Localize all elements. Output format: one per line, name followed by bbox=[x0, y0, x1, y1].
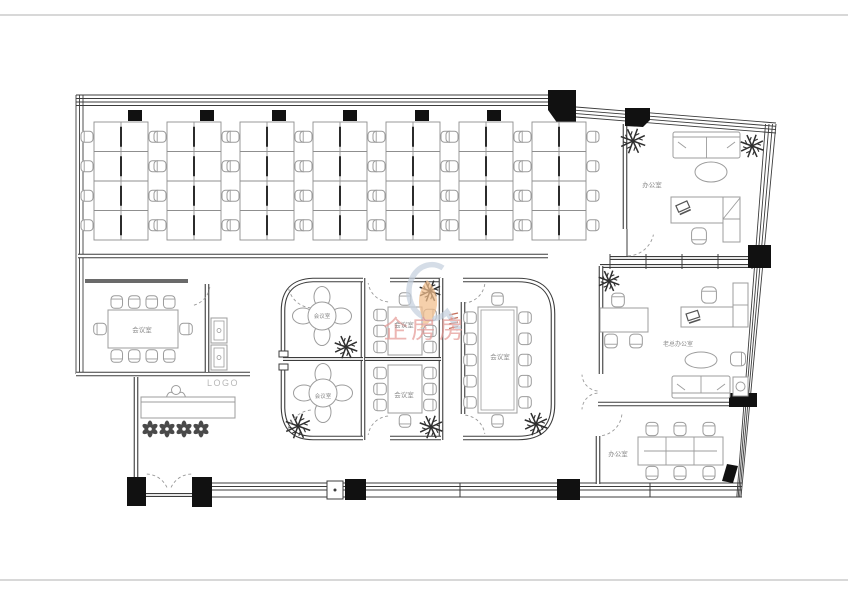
column bbox=[557, 479, 580, 500]
chair bbox=[300, 220, 312, 231]
door-arc bbox=[289, 288, 311, 308]
chair-seat bbox=[587, 220, 599, 231]
chair-seat bbox=[464, 397, 477, 409]
chair bbox=[674, 466, 686, 479]
chair-seat bbox=[163, 296, 175, 309]
chair bbox=[464, 397, 477, 409]
chair bbox=[446, 220, 458, 231]
room-label-office-top-right: 办公室 bbox=[642, 180, 662, 189]
room-label-meeting-left: 会议室 bbox=[132, 325, 152, 334]
cabinet-body bbox=[211, 345, 227, 370]
chair bbox=[630, 334, 643, 348]
leaf bbox=[534, 415, 536, 419]
column bbox=[722, 464, 738, 483]
stool-icon bbox=[175, 421, 192, 438]
stool-center bbox=[182, 427, 186, 431]
round-meeting-table bbox=[294, 364, 353, 423]
leaf bbox=[303, 424, 307, 426]
desk-return bbox=[723, 197, 740, 242]
chair bbox=[163, 350, 175, 363]
door-arc bbox=[465, 284, 484, 303]
chair-seat bbox=[519, 161, 531, 172]
sofa bbox=[672, 376, 730, 398]
stool-icon bbox=[192, 421, 209, 438]
chair-seat bbox=[703, 422, 715, 435]
chair bbox=[154, 190, 166, 201]
floor-plan-page: 企房房 会议室 会议室 会议室 会议室 会议室 会议室 办公室 老总办公室 办公… bbox=[0, 0, 848, 600]
leaf bbox=[753, 151, 755, 155]
stool-icon bbox=[158, 421, 175, 438]
chair bbox=[146, 296, 158, 309]
chair-seat bbox=[81, 131, 93, 142]
chair bbox=[154, 161, 166, 172]
desk-cluster bbox=[154, 122, 234, 240]
leaf bbox=[613, 279, 617, 280]
desk-cluster bbox=[81, 122, 161, 240]
chair bbox=[111, 350, 123, 363]
plant-stem bbox=[296, 424, 299, 427]
chair-seat bbox=[227, 220, 239, 231]
door-arc bbox=[170, 474, 191, 490]
chair-seat bbox=[154, 220, 166, 231]
chair bbox=[492, 293, 504, 306]
desk-cluster bbox=[227, 122, 307, 240]
leaf bbox=[351, 345, 355, 347]
door-arc bbox=[147, 474, 168, 490]
door-arc bbox=[368, 283, 388, 302]
chair bbox=[519, 161, 531, 172]
reception-desk bbox=[141, 397, 235, 418]
chair bbox=[128, 350, 140, 363]
chair-seat bbox=[674, 422, 686, 435]
chair-seat bbox=[128, 350, 140, 363]
chair bbox=[146, 350, 158, 363]
chair-seat bbox=[374, 383, 387, 395]
room-label-office-bottom-right: 办公室 bbox=[608, 449, 628, 458]
chair-seat bbox=[464, 375, 477, 387]
chair-seat bbox=[300, 190, 312, 201]
chair-seat bbox=[519, 354, 532, 366]
door-frame bbox=[279, 351, 288, 357]
chair-seat bbox=[373, 131, 385, 142]
coffee-table-oval bbox=[695, 162, 727, 182]
column bbox=[748, 245, 771, 268]
chair-seat bbox=[300, 131, 312, 142]
leaf bbox=[631, 131, 633, 135]
leaf bbox=[337, 348, 341, 350]
room-label-meeting-large: 会议室 bbox=[490, 352, 510, 361]
column bbox=[548, 90, 576, 124]
chair bbox=[519, 220, 531, 231]
leaf bbox=[296, 416, 298, 420]
plant-icon bbox=[741, 135, 764, 158]
chair bbox=[424, 399, 437, 411]
desk-cluster bbox=[446, 122, 526, 240]
desk-cluster bbox=[373, 122, 453, 240]
column bbox=[128, 110, 142, 121]
chair bbox=[587, 220, 599, 231]
chair-seat bbox=[81, 220, 93, 231]
stool-center bbox=[199, 427, 203, 431]
chair-seat bbox=[154, 161, 166, 172]
chair-seat bbox=[180, 323, 193, 335]
stool-center bbox=[165, 427, 169, 431]
chair bbox=[81, 161, 93, 172]
room-label-ceo-office: 老总办公室 bbox=[663, 340, 693, 348]
chair bbox=[300, 161, 312, 172]
chair-seat bbox=[630, 334, 643, 348]
column bbox=[272, 110, 286, 121]
chair-seat bbox=[605, 334, 618, 348]
plant-stem bbox=[750, 144, 753, 147]
chair-seat bbox=[374, 367, 387, 379]
chair bbox=[605, 334, 618, 348]
leaf bbox=[610, 285, 611, 289]
leaf bbox=[344, 338, 346, 342]
end-table bbox=[733, 377, 748, 396]
chair-seat bbox=[519, 397, 532, 409]
column bbox=[343, 110, 357, 121]
chair bbox=[424, 383, 437, 395]
chair bbox=[81, 220, 93, 231]
coffee-table-oval bbox=[685, 352, 717, 368]
room-label-meeting-mid-bottom: 会议室 bbox=[394, 390, 414, 399]
leaf bbox=[422, 428, 426, 430]
chair bbox=[702, 287, 717, 303]
chair bbox=[587, 161, 599, 172]
chair-seat bbox=[300, 161, 312, 172]
table-round bbox=[309, 379, 337, 407]
chair bbox=[692, 228, 707, 244]
chair bbox=[464, 375, 477, 387]
chair bbox=[374, 399, 387, 411]
chair bbox=[446, 190, 458, 201]
chair-seat bbox=[373, 220, 385, 231]
chair bbox=[519, 354, 532, 366]
chair bbox=[94, 323, 107, 335]
leaf bbox=[347, 352, 349, 356]
room-label-meeting-mid-top: 会议室 bbox=[394, 320, 414, 329]
leaf bbox=[634, 146, 636, 150]
chair-seat bbox=[464, 354, 477, 366]
chair-seat bbox=[227, 190, 239, 201]
conference-table bbox=[388, 365, 422, 413]
chair-seat bbox=[692, 228, 707, 244]
chair-seat bbox=[587, 161, 599, 172]
stool-icon bbox=[141, 421, 158, 438]
chair-seat bbox=[373, 161, 385, 172]
room-label-meeting-round-bottom: 会议室 bbox=[315, 392, 332, 400]
chair-seat bbox=[587, 190, 599, 201]
chair bbox=[374, 383, 387, 395]
head bbox=[172, 386, 181, 395]
floor-plan-drawing: 企房房 会议室 会议室 会议室 会议室 会议室 会议室 办公室 老总办公室 办公… bbox=[0, 0, 848, 600]
wall-detail-dot bbox=[334, 489, 337, 492]
door-arc bbox=[465, 415, 484, 434]
chair-seat bbox=[94, 323, 107, 335]
chair-seat bbox=[399, 415, 411, 428]
chair bbox=[492, 415, 504, 428]
chair-seat bbox=[424, 399, 437, 411]
chair-seat bbox=[81, 161, 93, 172]
desk-cluster bbox=[519, 122, 599, 240]
chair-seat bbox=[446, 190, 458, 201]
chair bbox=[81, 190, 93, 201]
chair-seat bbox=[146, 296, 158, 309]
chair bbox=[227, 190, 239, 201]
door-frame bbox=[279, 364, 288, 370]
chair-seat bbox=[424, 383, 437, 395]
plant-stem bbox=[429, 425, 432, 428]
chair-seat bbox=[446, 131, 458, 142]
curtain-wall-topright bbox=[576, 114, 776, 130]
room-label-meeting-round-top: 会议室 bbox=[314, 312, 331, 320]
chair bbox=[154, 220, 166, 231]
chair bbox=[373, 161, 385, 172]
leaf bbox=[429, 418, 431, 422]
cabinet bbox=[211, 318, 227, 343]
chair bbox=[154, 131, 166, 142]
chair-seat bbox=[492, 293, 504, 306]
leaf bbox=[607, 273, 608, 277]
desk-cluster bbox=[300, 122, 380, 240]
furniture-layer bbox=[81, 122, 748, 480]
column bbox=[415, 110, 429, 121]
chair bbox=[464, 354, 477, 366]
chair bbox=[300, 131, 312, 142]
chair-seat bbox=[374, 399, 387, 411]
plant-stem bbox=[344, 345, 347, 348]
plant-icon bbox=[335, 336, 358, 359]
chair bbox=[227, 220, 239, 231]
chair bbox=[227, 161, 239, 172]
chair-seat bbox=[702, 287, 717, 303]
column bbox=[625, 108, 650, 127]
chair-seat bbox=[373, 190, 385, 201]
column bbox=[192, 477, 212, 507]
leaf bbox=[432, 432, 434, 436]
chair bbox=[646, 422, 658, 435]
leaf bbox=[434, 289, 438, 290]
chair bbox=[300, 190, 312, 201]
chair bbox=[227, 131, 239, 142]
cabinet-body bbox=[211, 318, 227, 343]
chair bbox=[424, 367, 437, 379]
chair-seat bbox=[227, 161, 239, 172]
chair-seat bbox=[519, 190, 531, 201]
chair bbox=[612, 293, 625, 307]
plant-stem bbox=[631, 139, 634, 142]
plant-stem bbox=[534, 422, 537, 425]
chair-seat bbox=[612, 293, 625, 307]
chair-seat bbox=[227, 131, 239, 142]
column bbox=[345, 479, 366, 500]
door-arc bbox=[601, 415, 622, 436]
chair bbox=[373, 131, 385, 142]
chair-seat bbox=[519, 131, 531, 142]
leaf bbox=[743, 147, 747, 149]
chair bbox=[446, 161, 458, 172]
chair-seat bbox=[111, 350, 123, 363]
chair-seat bbox=[424, 367, 437, 379]
chair-seat bbox=[300, 220, 312, 231]
chair-seat bbox=[519, 375, 532, 387]
chair-seat bbox=[646, 466, 658, 479]
chair bbox=[519, 131, 531, 142]
chair bbox=[519, 312, 532, 324]
chair-seat bbox=[81, 190, 93, 201]
chair-seat bbox=[146, 350, 158, 363]
meeting-table-small bbox=[600, 308, 648, 332]
chair-seat bbox=[587, 131, 599, 142]
door-arc bbox=[582, 375, 598, 391]
chair bbox=[180, 323, 193, 335]
chair bbox=[519, 333, 532, 345]
chair bbox=[111, 296, 123, 309]
chair-seat bbox=[674, 466, 686, 479]
chair-seat bbox=[731, 352, 746, 366]
chair-seat bbox=[519, 220, 531, 231]
chair bbox=[519, 397, 532, 409]
chair-seat bbox=[703, 466, 715, 479]
door-arc bbox=[628, 235, 653, 256]
chair bbox=[519, 190, 531, 201]
chair bbox=[703, 466, 715, 479]
plant-stem bbox=[607, 279, 610, 282]
chair bbox=[587, 131, 599, 142]
curtain-wall-topright bbox=[576, 117, 776, 133]
chair bbox=[163, 296, 175, 309]
chair-seat bbox=[154, 190, 166, 201]
door-arc bbox=[582, 393, 598, 409]
column bbox=[200, 110, 214, 121]
column bbox=[487, 110, 501, 121]
leaf bbox=[638, 139, 642, 141]
leaf bbox=[527, 425, 531, 427]
chair bbox=[446, 131, 458, 142]
chair-seat bbox=[446, 220, 458, 231]
column bbox=[127, 477, 146, 506]
stool-center bbox=[148, 427, 152, 431]
chair bbox=[519, 375, 532, 387]
curtain-wall-topright bbox=[576, 110, 776, 126]
chair bbox=[646, 466, 658, 479]
chair bbox=[81, 131, 93, 142]
chair-seat bbox=[446, 161, 458, 172]
chair bbox=[587, 190, 599, 201]
chair-seat bbox=[154, 131, 166, 142]
chair bbox=[374, 367, 387, 379]
sofa bbox=[673, 132, 740, 158]
watermark-text: 企房房 bbox=[383, 316, 467, 344]
chair-seat bbox=[128, 296, 140, 309]
chair bbox=[373, 190, 385, 201]
chair-seat bbox=[646, 422, 658, 435]
chair bbox=[373, 220, 385, 231]
chair bbox=[128, 296, 140, 309]
chair-seat bbox=[111, 296, 123, 309]
chair-seat bbox=[163, 350, 175, 363]
curtain-wall-topright bbox=[576, 107, 776, 123]
chair bbox=[674, 422, 686, 435]
watermark: 企房房 bbox=[383, 265, 467, 344]
chair-seat bbox=[492, 415, 504, 428]
chair bbox=[703, 422, 715, 435]
chair bbox=[731, 352, 746, 366]
door-arc bbox=[368, 416, 388, 435]
cabinet bbox=[211, 345, 227, 370]
leaf bbox=[750, 137, 752, 141]
chair-seat bbox=[519, 333, 532, 345]
chair-seat bbox=[519, 312, 532, 324]
leaf bbox=[541, 422, 545, 424]
leaf bbox=[757, 144, 761, 146]
chair bbox=[399, 415, 411, 428]
logo-text: LOGO bbox=[207, 378, 239, 388]
